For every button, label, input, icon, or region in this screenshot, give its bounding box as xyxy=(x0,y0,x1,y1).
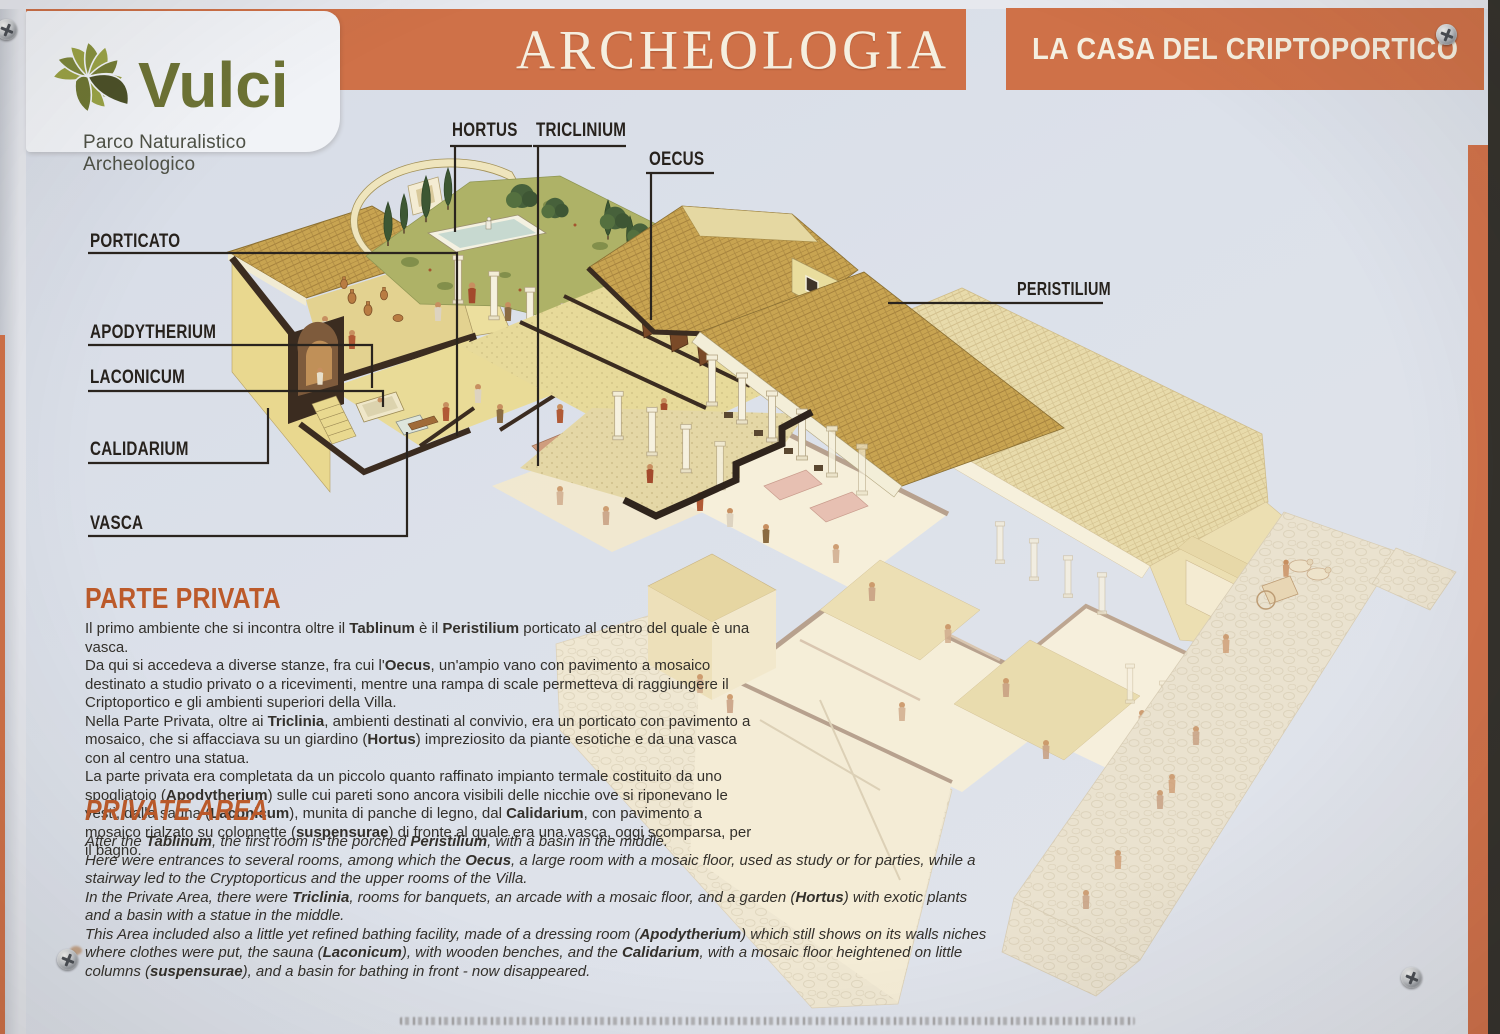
paragraph-it-1: Il primo ambiente che si incontra oltre … xyxy=(85,620,761,657)
english-section-heading: PRIVATE AREA xyxy=(85,795,268,828)
diagram-label-triclinium: TRICLINIUM xyxy=(536,120,626,142)
screw-icon xyxy=(1401,967,1422,988)
screw-icon xyxy=(1436,24,1457,45)
sign-photo: LA CASA DEL CRIPTOPORTICO ARCHEOLOGIA xyxy=(0,0,1500,1034)
diagram-label-hortus: HORTUS xyxy=(452,120,518,142)
diagram-label-calidarium: CALIDARIUM xyxy=(90,439,189,461)
diagram-label-laconicum: LACONICUM xyxy=(90,367,185,389)
diagram-label-apodytherium: APODYTHERIUM xyxy=(90,322,216,344)
diagram-label-peristilium: PERISTILIUM xyxy=(1017,279,1111,300)
paragraph-en-2: Here were entrances to several rooms, am… xyxy=(85,852,991,889)
diagram-label-porticato: PORTICATO xyxy=(90,231,180,253)
fine-print-strip xyxy=(400,1017,1135,1025)
paragraph-it-2: Da qui si accedeva a diverse stanze, fra… xyxy=(85,657,761,713)
paragraph-en-4: This Area included also a little yet ref… xyxy=(85,926,991,982)
screw-icon xyxy=(57,949,78,970)
italian-section-heading: PARTE PRIVATA xyxy=(85,583,281,616)
paragraph-en-1: After the Tablinum, the first room is th… xyxy=(85,833,991,852)
paragraph-it-3: Nella Parte Privata, oltre ai Triclinia,… xyxy=(85,713,761,769)
paragraph-en-3: In the Private Area, there were Triclini… xyxy=(85,889,991,926)
diagram-label-vasca: VASCA xyxy=(90,513,143,535)
english-text-block: After the Tablinum, the first room is th… xyxy=(85,833,991,981)
diagram-label-oecus: OECUS xyxy=(649,149,704,171)
